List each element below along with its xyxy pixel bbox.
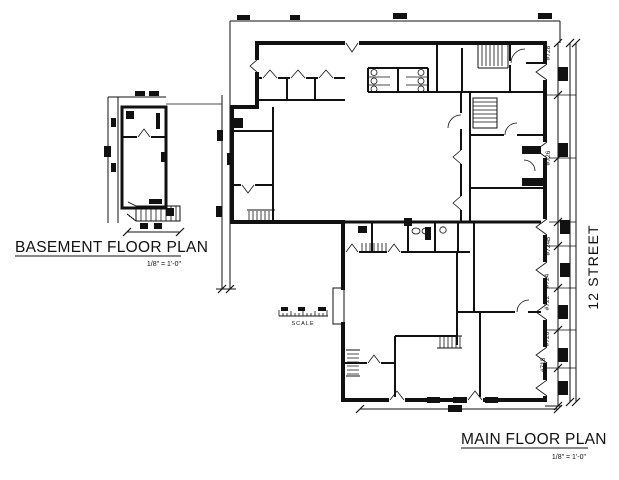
upper-wing-interior — [227, 43, 545, 222]
basement-plan-scale: 1/8" = 1'-0" — [147, 261, 182, 268]
entry-stoop — [558, 67, 568, 81]
scale-bar: SCALE — [279, 307, 328, 327]
address-label-718: #718 — [540, 357, 547, 372]
address-label-722: #722 — [544, 295, 551, 310]
address-label-720: #720 — [544, 331, 551, 346]
address-label-724: #724 — [544, 273, 551, 288]
address-label-726: #726 — [545, 150, 552, 165]
main-floor-plan — [227, 41, 570, 403]
address-label-728: #728 — [545, 45, 552, 60]
address-label-724b: #724B — [545, 237, 552, 256]
main-plan-scale: 1/8" = 1'-0" — [552, 454, 587, 461]
main-plan-title: MAIN FLOOR PLAN — [461, 431, 607, 448]
street-entries — [536, 64, 570, 396]
basement-plan-title: BASEMENT FLOOR PLAN — [15, 239, 208, 256]
drawing-sheet: SCALE BASEMENT FLOOR PLAN 1/8" = 1'-0" M… — [0, 0, 619, 480]
basement-plan — [104, 91, 184, 236]
lower-wing-interior — [333, 218, 545, 403]
street-name-label: 12 STREET — [585, 224, 601, 310]
basement-stair — [127, 202, 180, 229]
scale-bar-label: SCALE — [291, 321, 314, 327]
basement-fixture — [126, 111, 134, 119]
floor-plan-drawing: SCALE BASEMENT FLOOR PLAN 1/8" = 1'-0" M… — [0, 0, 619, 480]
